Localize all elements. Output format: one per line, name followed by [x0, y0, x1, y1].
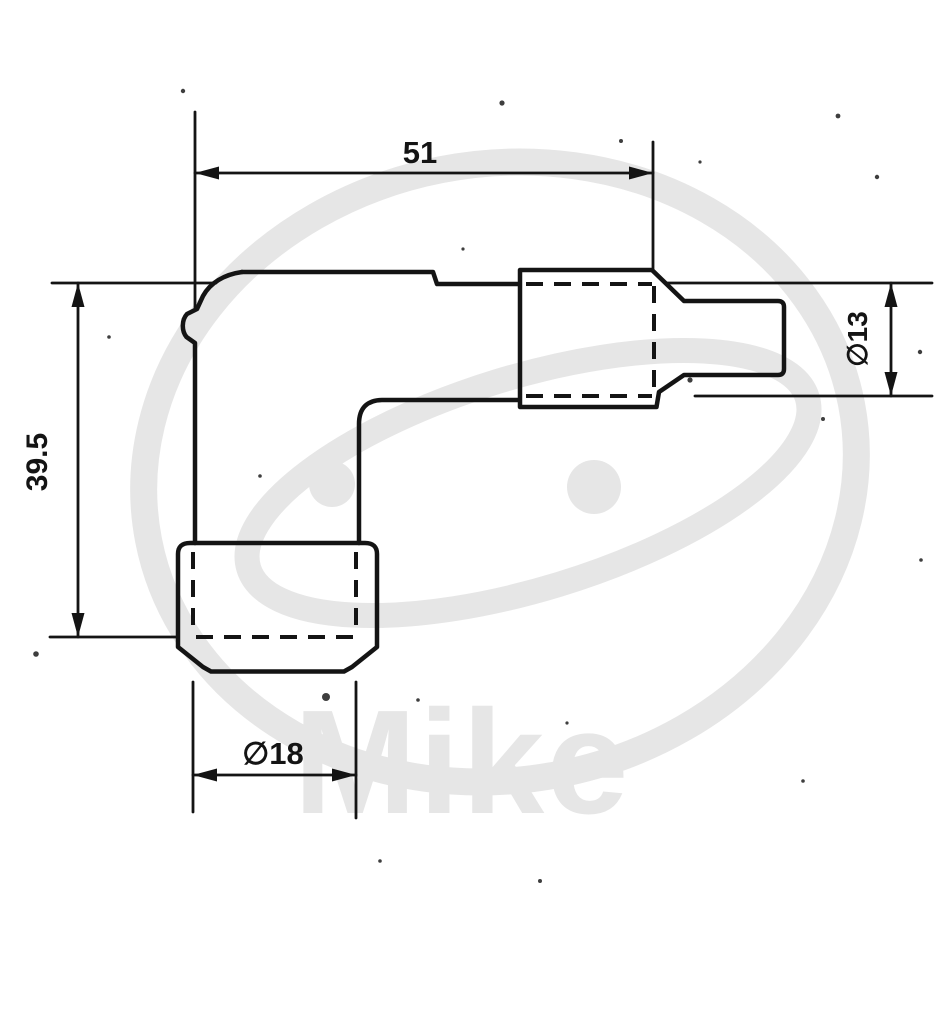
dimension-label-width: 51 [403, 135, 437, 170]
dimension-label-height: 39.5 [21, 433, 54, 491]
watermark-text: Mike [293, 680, 630, 845]
dimension-label-tip-diameter: ∅13 [842, 311, 873, 367]
spark-plug-cap-technical-drawing: Mike 51 39.5 [0, 0, 944, 1024]
dimension-width: 51 [195, 112, 653, 308]
watermark: Mike [90, 101, 910, 845]
dimension-label-base-diameter: ∅18 [242, 736, 304, 771]
watermark-dot-right [567, 460, 621, 514]
arm-top-edge [242, 272, 519, 284]
watermark-dot-left [309, 461, 355, 507]
